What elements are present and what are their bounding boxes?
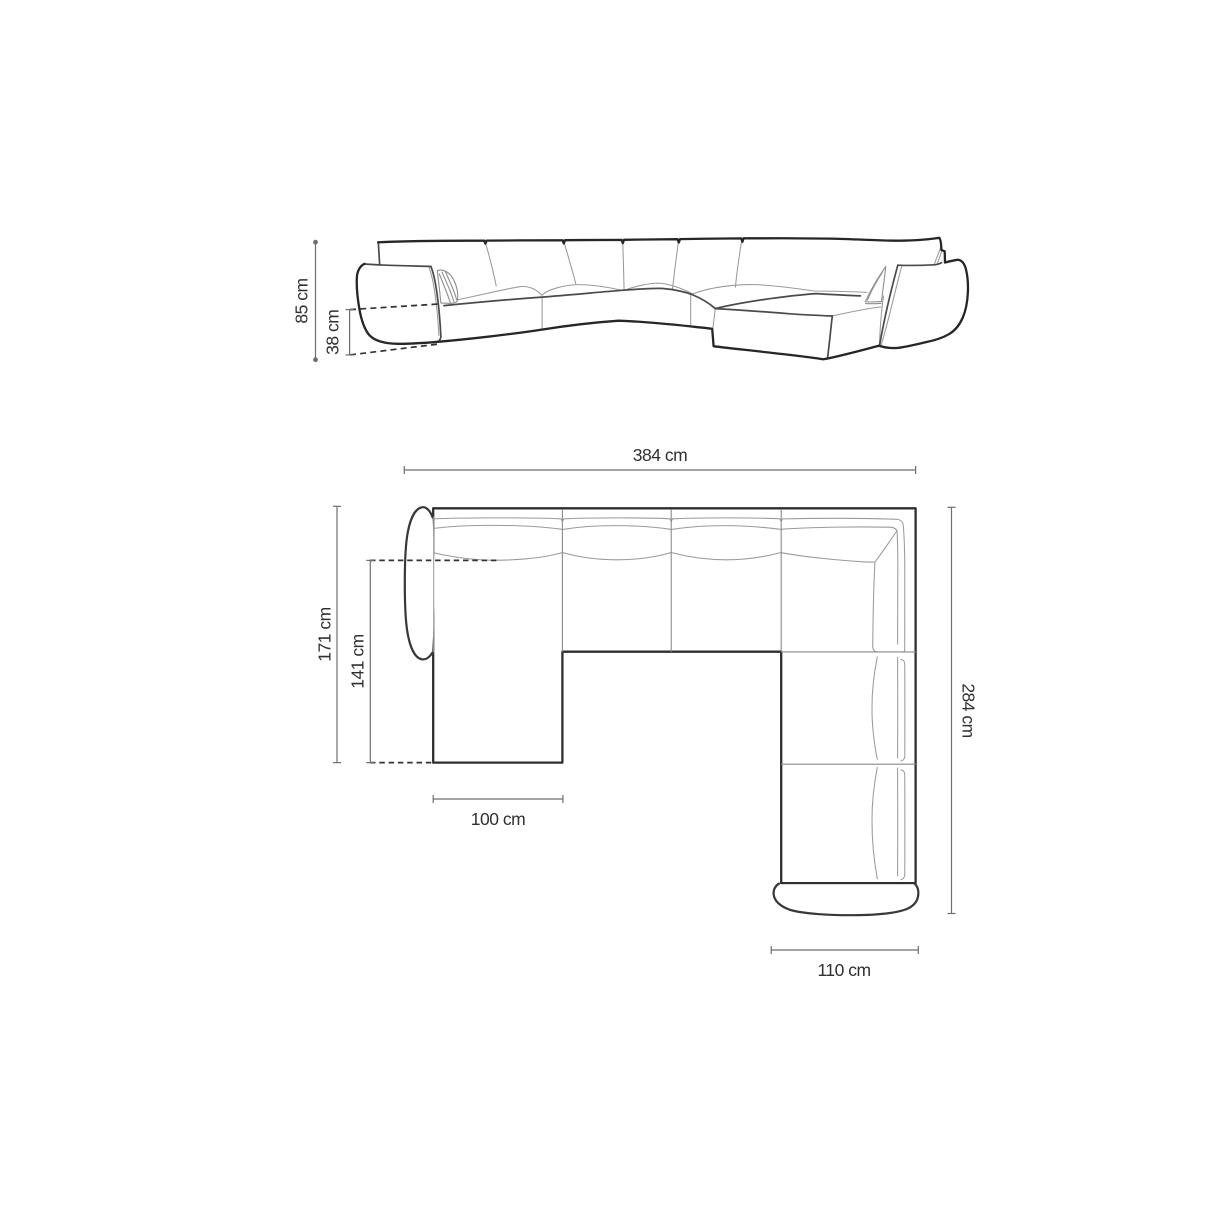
svg-text:284 cm: 284 cm <box>959 683 979 737</box>
svg-text:85 cm: 85 cm <box>292 278 312 323</box>
svg-text:38 cm: 38 cm <box>323 310 343 355</box>
svg-text:100 cm: 100 cm <box>471 809 525 829</box>
svg-text:171 cm: 171 cm <box>315 607 335 661</box>
svg-text:384 cm: 384 cm <box>633 445 687 465</box>
svg-text:110 cm: 110 cm <box>817 960 870 980</box>
svg-text:141 cm: 141 cm <box>348 634 368 688</box>
